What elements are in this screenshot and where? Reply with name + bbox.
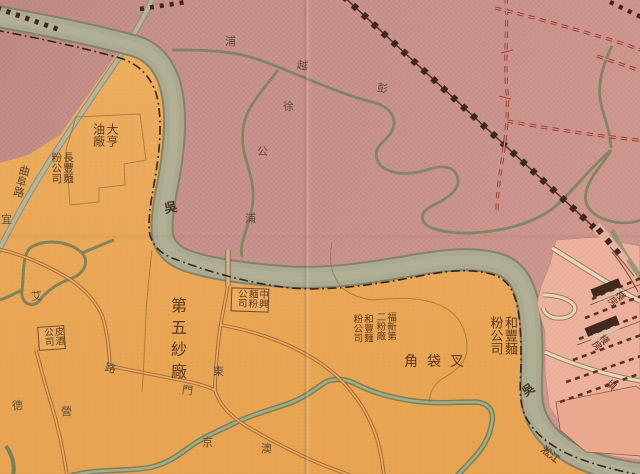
label-road-ao: 澳 <box>261 440 272 456</box>
label-creek-pengyuepu-char3: 浦 <box>225 33 236 49</box>
label-fuxin-no2-mill: 福新第二粉廠 <box>372 312 395 344</box>
label-road-dong: 東 <box>213 363 224 379</box>
label-creek-xugongpu-char1: 徐 <box>283 98 294 114</box>
label-creek-pengyuepu-char2: 越 <box>296 56 309 73</box>
label-road-yi: 宜 <box>1 211 12 227</box>
label-creek-pengyuepu-char1: 彭 <box>376 79 389 96</box>
label-road-ying: 營 <box>61 403 72 419</box>
label-zhongxing-flour-co: 中興麵粉公司 <box>231 287 270 312</box>
label-road-jing: 京 <box>202 434 213 450</box>
label-road-de: 德 <box>12 397 23 413</box>
label-road-ai: 艾 <box>30 287 43 304</box>
paper-crease-horizontal <box>0 234 640 239</box>
label-road-men: 門 <box>181 381 194 398</box>
label-changfeng-flour-co: 長豐麵粉公司 <box>46 152 73 188</box>
label-hefeng-flour-co: 和豐麵粉公司 <box>484 316 516 360</box>
label-daheng-oil-mill: 大亨油廠 <box>88 123 118 150</box>
label-creek-xugongpu-char2: 公 <box>257 143 268 159</box>
map-canvas: 浦 越 彭 徐 公 浦 吳 吳 淞江 大亨油廠 長豐麵粉公司 皮酒公司 第五紗廠… <box>0 0 640 474</box>
label-chadaijiao-area: 叉袋角 <box>404 351 473 371</box>
label-hefeng-flour-co-small: 和豐麵粉公司 <box>349 314 372 346</box>
label-no5-cotton-mill: 第五紗廠 <box>166 297 186 389</box>
label-creek-xugongpu-char3: 浦 <box>245 210 256 226</box>
label-brewery-co: 皮酒公司 <box>37 325 66 351</box>
